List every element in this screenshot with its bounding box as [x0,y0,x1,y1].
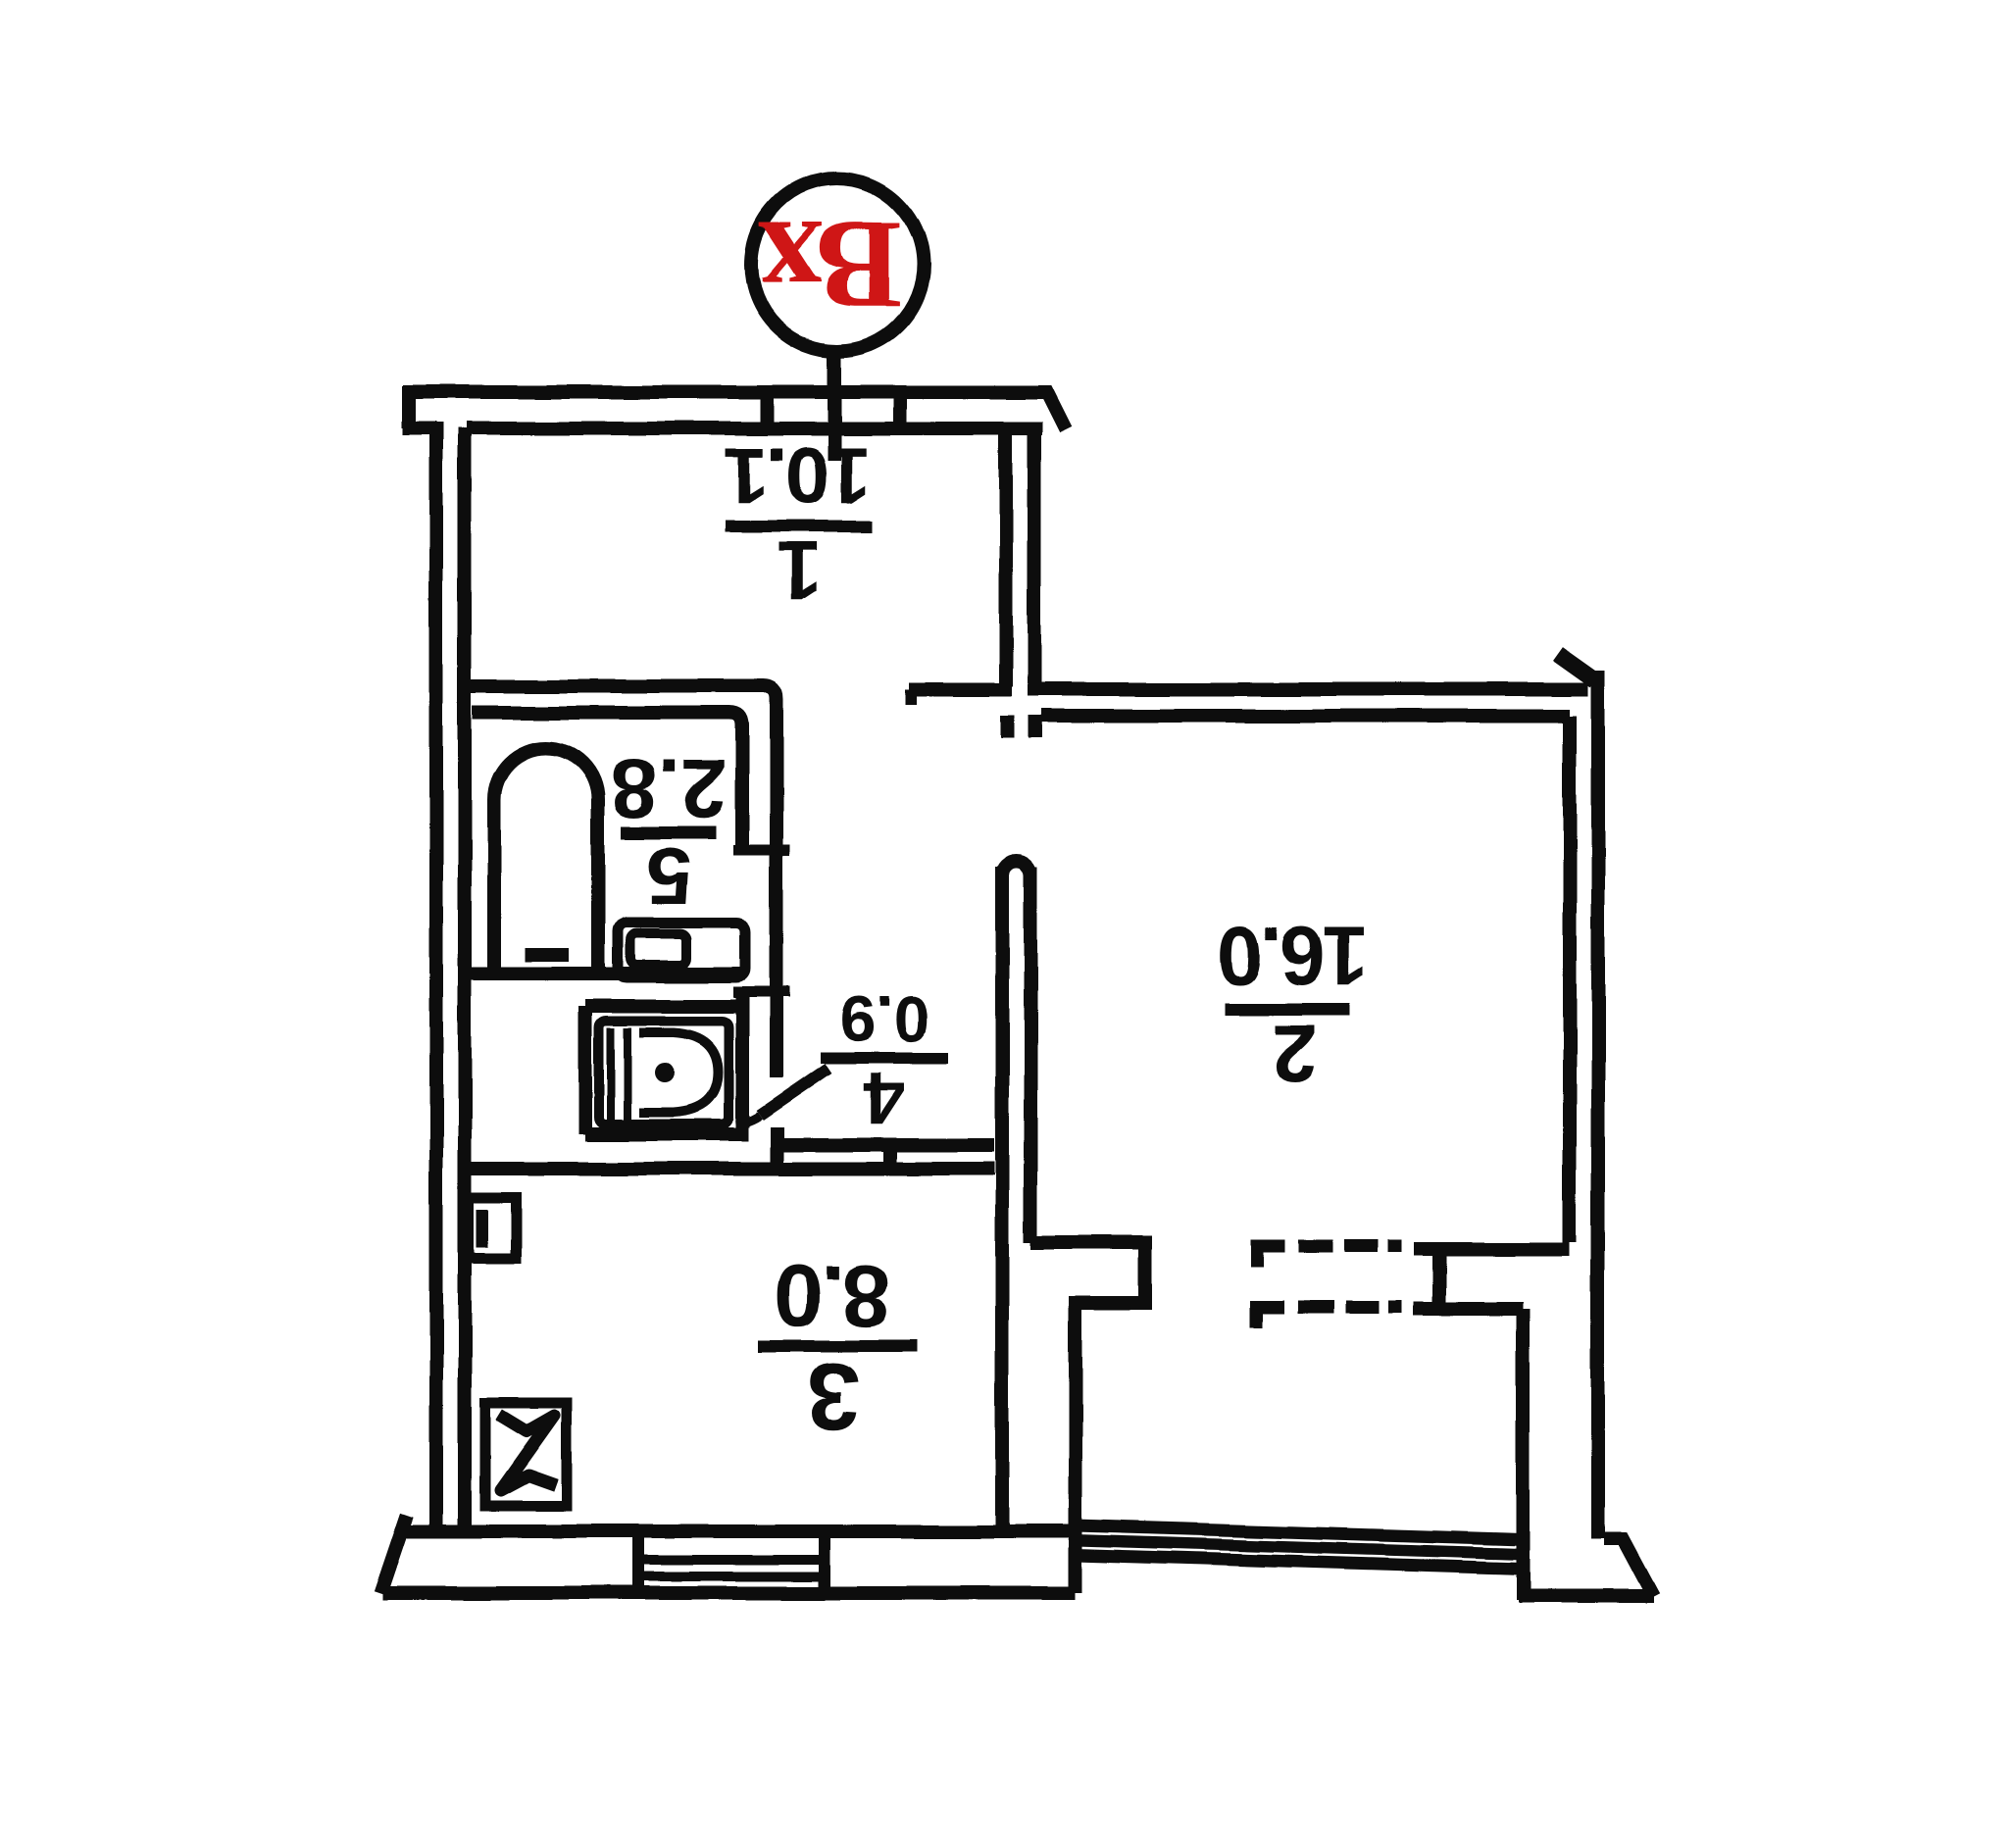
svg-text:1: 1 [777,524,823,617]
svg-text:10.1: 10.1 [726,430,872,520]
svg-text:3: 3 [807,1343,861,1451]
svg-text:2.8: 2.8 [611,741,727,834]
svg-text:5: 5 [646,831,691,921]
svg-text:8.0: 8.0 [777,1246,890,1344]
svg-text:0.9: 0.9 [839,982,929,1055]
svg-text:2: 2 [1272,1007,1318,1099]
svg-text:4: 4 [864,1057,905,1140]
svg-text:Вх: Вх [759,194,902,336]
svg-text:16.0: 16.0 [1220,910,1369,1002]
